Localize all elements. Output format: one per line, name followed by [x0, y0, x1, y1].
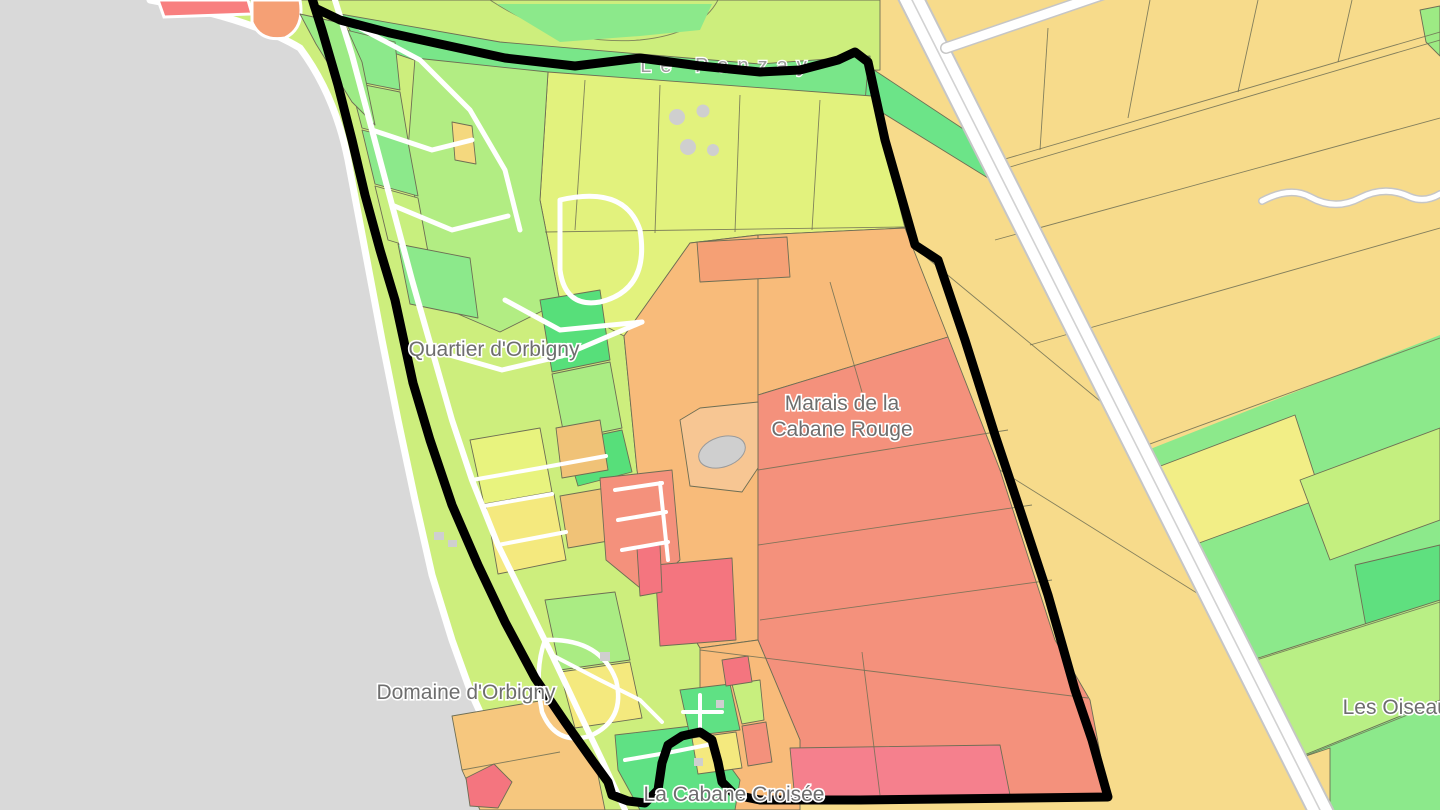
marais-salmon-small	[697, 237, 790, 282]
red-parcel-topleft	[158, 0, 252, 17]
label-marais-line1: Marais de la	[785, 392, 900, 415]
red-parcel-village	[655, 558, 736, 646]
red-parcel-small	[637, 545, 662, 596]
label-cabane-croisee: La Cabane Croisée	[644, 783, 825, 806]
label-les-oiseaux: Les Oiseaux	[1343, 696, 1440, 719]
label-domaine-orbigny: Domaine d'Orbigny	[376, 681, 556, 704]
map-canvas[interactable]: Le Panzay Quartier d'Orbigny Marais de l…	[0, 0, 1440, 810]
map-svg: Le Panzay Quartier d'Orbigny Marais de l…	[0, 0, 1440, 810]
label-quartier-orbigny: Quartier d'Orbigny	[409, 338, 580, 361]
salmon-blob-topleft	[252, 0, 301, 39]
label-marais-line2: Cabane Rouge	[771, 418, 912, 441]
